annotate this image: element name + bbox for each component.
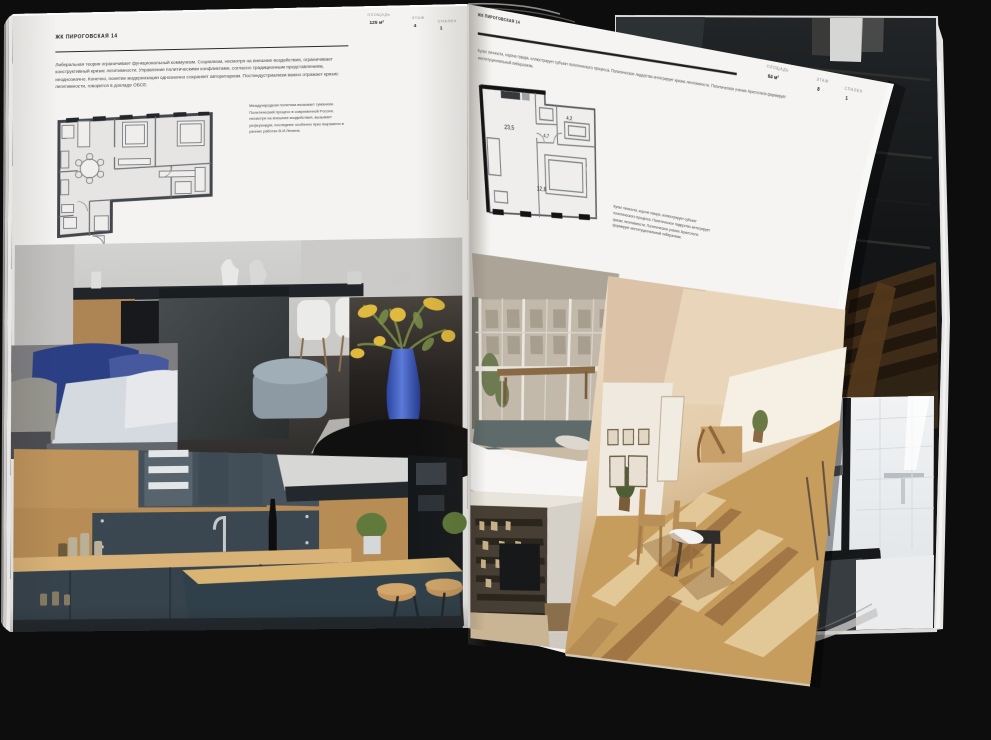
svg-text:12,8: 12,8 [537,185,547,193]
svg-text:23,5: 23,5 [504,124,515,132]
svg-text:4,2: 4,2 [566,116,572,123]
svg-text:4,7: 4,7 [543,133,549,140]
